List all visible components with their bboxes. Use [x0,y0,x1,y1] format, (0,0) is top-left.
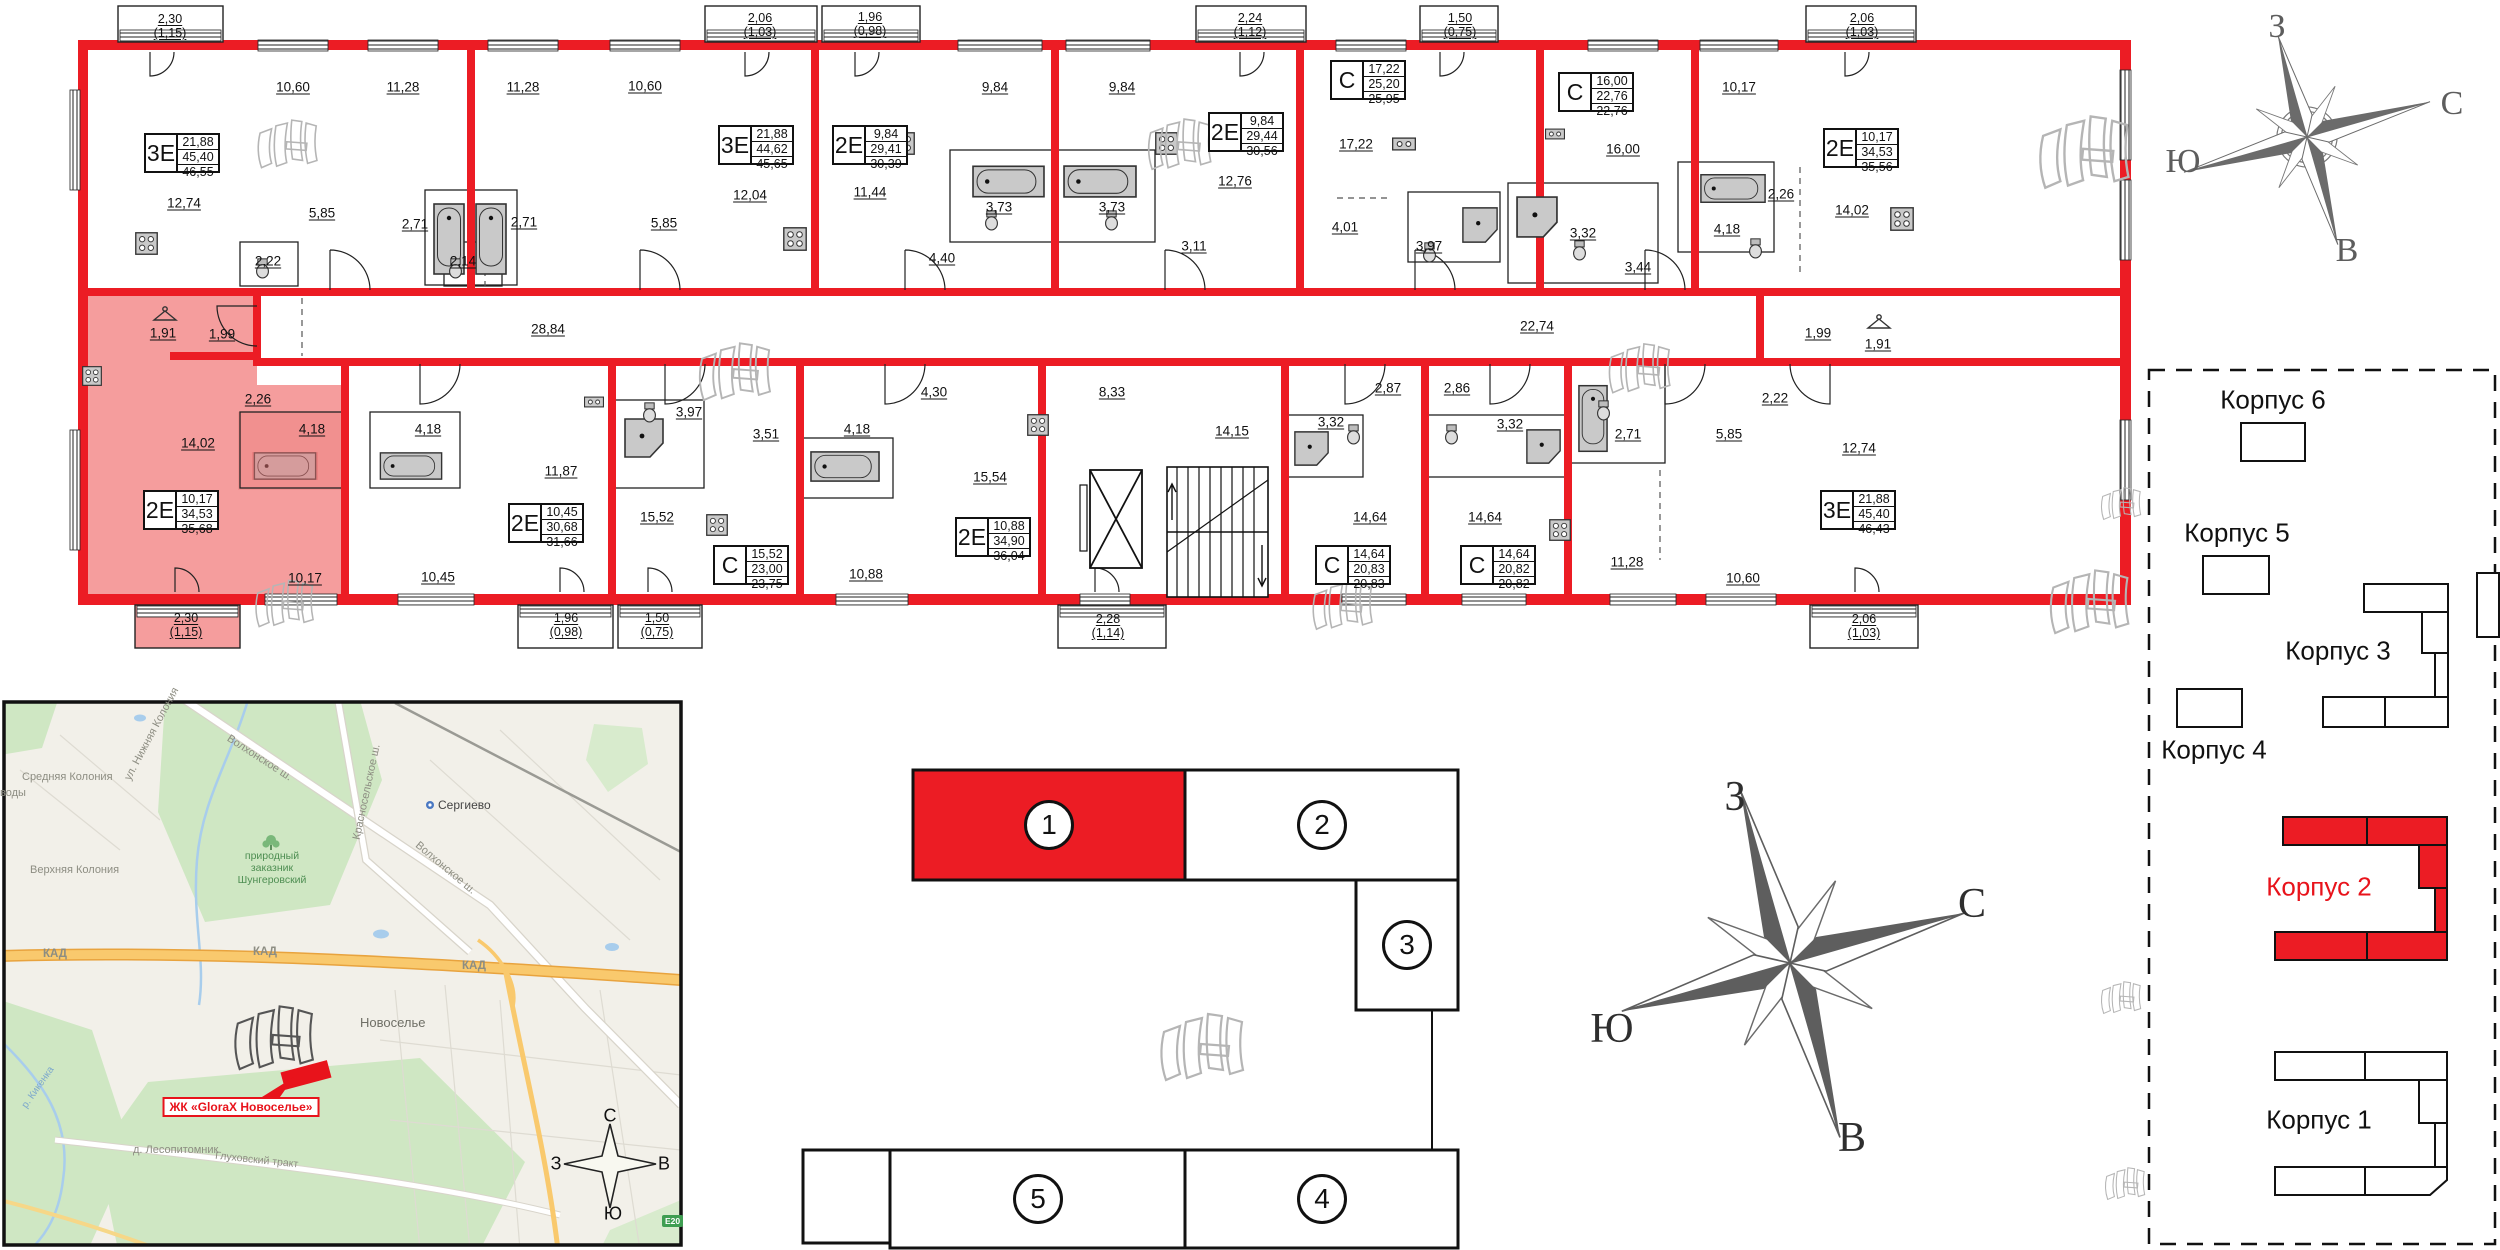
room-area-label: 2,71 [402,217,428,232]
apartment-spec-box[interactable]: С 14,6420,8220,82 [1460,545,1536,585]
room-area-label: 2,22 [255,254,281,269]
section-3-button[interactable]: 3 [1382,920,1432,970]
apartment-spec-box[interactable]: 2Е 10,4530,6831,66 [508,503,584,543]
compass-south-label: Ю [604,1204,622,1225]
corridor-area-label: 14,15 [1215,424,1249,439]
balcony-label: 2,28(1,14) [1092,612,1125,640]
room-area-label: 11,87 [545,464,578,479]
room-area-label: 10,60 [628,79,662,94]
room-area-label: 11,28 [1611,555,1644,570]
room-area-label: 1,91 [1865,337,1891,352]
room-area-label: 5,85 [309,206,335,221]
room-area-label: 3,32 [1497,417,1523,432]
room-area-label: 14,02 [181,436,215,451]
room-area-label: 11,28 [507,80,540,95]
balcony-label: 2,30(1,15) [154,12,187,40]
section-4-button[interactable]: 4 [1297,1174,1347,1224]
room-area-label: 4,18 [299,422,325,437]
room-area-label: 9,84 [1109,80,1135,95]
section-annex-shape [803,1150,890,1243]
korpus-6-shape [2241,423,2305,461]
room-area-label: 17,22 [1339,137,1373,152]
section-2-button[interactable]: 2 [1297,800,1347,850]
room-area-label: 10,60 [1726,571,1760,586]
room-area-label: 4,18 [415,422,441,437]
compass-west-label: З [2268,8,2285,46]
room-area-label: 5,85 [1716,427,1742,442]
corridor-area-label: 28,84 [531,322,565,337]
room-area-label: 3,32 [1570,226,1596,241]
apartment-spec-box[interactable]: 3Е 21,8844,6245,65 [718,125,794,165]
room-area-label: 2,14 [450,254,476,269]
compass-south-label: Ю [1590,1005,1633,1053]
room-area-label: 10,17 [288,571,322,586]
section-1-button[interactable]: 1 [1024,800,1074,850]
room-area-label: 9,84 [982,80,1008,95]
room-area-label: 15,52 [640,510,674,525]
korpus-2-label-selected[interactable]: Корпус 2 [2266,872,2372,903]
map-label: Новоселье [360,1015,426,1030]
lobby-area-label: 8,33 [1099,385,1125,400]
room-area-label: 3,11 [1181,239,1206,254]
compass-rose-big [1573,742,2015,1186]
balcony-label: 2,24(1,12) [1234,11,1267,39]
room-area-label: 4,18 [1714,222,1740,237]
compass-rose-small [2155,1,2461,280]
room-area-label: 1,99 [209,327,235,342]
room-area-label: 3,97 [1416,239,1442,254]
room-area-label: 12,74 [167,196,201,211]
room-area-label: 14,02 [1835,203,1869,218]
room-area-label: 10,88 [849,567,883,582]
room-area-label: 11,28 [387,80,420,95]
apartment-spec-box[interactable]: 2Е 9,8429,4130,39 [832,125,908,165]
map-label: Сергиево [438,798,491,812]
apartment-spec-box[interactable]: 3Е 21,8845,4046,43 [1820,490,1896,530]
apartment-spec-box[interactable]: С 15,5223,0023,75 [713,545,789,585]
compass-south-label: Ю [2166,143,2201,181]
map-label: КАД [43,948,67,960]
apartment-spec-box[interactable]: 2Е 9,8429,4430,56 [1208,112,1284,152]
room-area-label: 3,97 [676,405,702,420]
room-area-label: 4,18 [844,422,870,437]
korpus-4-shape [2177,689,2242,727]
balcony-label: 2,06(1,03) [1846,11,1879,39]
compass-north-label: С [1958,880,1986,928]
room-area-label: 12,74 [1842,441,1876,456]
compass-west-label: З [551,1154,562,1175]
map-label: д. Лесопитомник [133,1144,218,1156]
korpus-4-label[interactable]: Корпус 4 [2161,735,2267,766]
room-area-label: 11,44 [854,185,887,200]
compass-east-label: В [2336,232,2359,270]
map-label: КАД [253,946,277,958]
room-area-label: 3,73 [1099,200,1125,215]
room-area-label: 4,01 [1332,220,1358,235]
room-area-label: 2,26 [245,392,271,407]
room-area-label: 14,64 [1353,510,1387,525]
room-area-label: 14,64 [1468,510,1502,525]
stairs [1167,467,1268,597]
room-area-label: 4,40 [929,251,955,266]
map-label: заказник [251,862,293,874]
room-area-label: 15,54 [973,470,1007,485]
hanger-icon [1868,315,1890,328]
balcony-label: 1,50(0,75) [641,611,674,639]
map-label: природный [245,850,299,862]
room-area-label: 3,73 [986,200,1012,215]
map-label: КАД [462,960,486,972]
apartment-spec-box-highlighted[interactable]: 2Е 10,1734,5335,68 [143,490,219,530]
room-area-label: 12,04 [733,188,767,203]
apartment-spec-box[interactable]: 2Е 10,1734,5335,56 [1823,128,1899,168]
room-area-label: 3,44 [1625,260,1651,275]
compass-east-label: В [658,1154,670,1175]
compass-north-label: С [2441,85,2464,123]
floor-plan-page: { "apartments": [ {"type":"3Е","v1":"21,… [0,0,2500,1250]
edge-building-shape [2477,573,2499,637]
room-area-label: 3,32 [1318,415,1344,430]
apartment-spec-box[interactable]: С 16,0022,7622,76 [1558,72,1634,112]
balcony-label: 2,30(1,15) [170,611,203,639]
apartment-spec-box[interactable]: С 14,6420,8320,83 [1315,545,1391,585]
project-name-badge[interactable]: ЖК «GloraX Новоселье» [163,1097,320,1117]
room-area-label: 1,91 [150,326,176,341]
korpus-3-label[interactable]: Корпус 3 [2285,636,2391,667]
compass-west-label: З [1724,773,1745,821]
map-label: Шунгеровский [238,874,307,886]
compass-east-label: В [1838,1114,1866,1162]
room-area-label: 4,30 [921,385,947,400]
corridor-area-label: 22,74 [1520,319,1554,334]
map-label: Верхняя Колония [30,864,119,876]
balcony-label: 1,50(0,75) [1444,11,1477,39]
room-area-label: 10,45 [421,570,455,585]
apartment-spec-box[interactable]: С 17,2225,2025,95 [1330,60,1406,100]
room-area-label: 2,26 [1768,187,1794,202]
room-area-label: 10,60 [276,80,310,95]
doors [150,52,1879,592]
room-area-label: 1,99 [1805,326,1831,341]
apartment-spec-box[interactable]: 2Е 10,8834,9036,04 [955,517,1031,557]
apartment-spec-box[interactable]: 3Е 21,8845,4046,55 [144,133,220,173]
korpus-6-label[interactable]: Корпус 6 [2220,385,2326,416]
korpus-5-label[interactable]: Корпус 5 [2184,518,2290,549]
room-area-label: 3,51 [753,427,779,442]
room-area-label: 2,87 [1375,381,1401,396]
balcony-label: 2,06(1,03) [1848,612,1881,640]
room-area-label: 5,85 [651,216,677,231]
road-number-badge: E20 [662,1215,683,1227]
korpus-5-shape [2203,556,2269,594]
room-area-label: 2,71 [1615,427,1641,442]
room-area-label: 16,00 [1606,142,1640,157]
room-area-label: 2,22 [1762,391,1788,406]
room-area-label: 2,71 [511,215,537,230]
section-5-button[interactable]: 5 [1013,1174,1063,1224]
korpus-1-label[interactable]: Корпус 1 [2266,1105,2372,1136]
room-area-label: 10,17 [1722,80,1756,95]
map-label: воды [0,787,26,799]
room-area-label: 12,76 [1218,174,1252,189]
building-sections-diagram [803,770,1458,1248]
room-area-label: 2,86 [1444,381,1470,396]
balcony-label: 1,96(0,98) [550,611,583,639]
balcony-label: 1,96(0,98) [854,10,887,38]
elevator [1080,470,1142,568]
map-label: Средняя Колония [22,771,113,783]
balcony-label: 2,06(1,03) [744,11,777,39]
compass-north-label: С [604,1106,617,1127]
